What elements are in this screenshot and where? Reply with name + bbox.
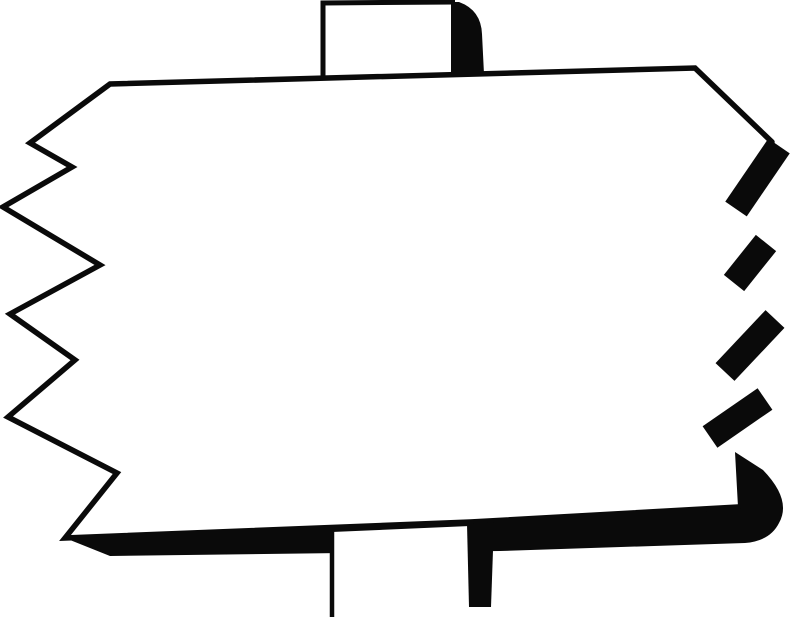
sign-panel bbox=[3, 68, 772, 538]
signboard-illustration bbox=[0, 0, 800, 621]
bottom-post-shadow bbox=[467, 522, 494, 607]
bottom-post-body bbox=[332, 526, 470, 621]
sign-clipart-svg bbox=[0, 0, 800, 621]
